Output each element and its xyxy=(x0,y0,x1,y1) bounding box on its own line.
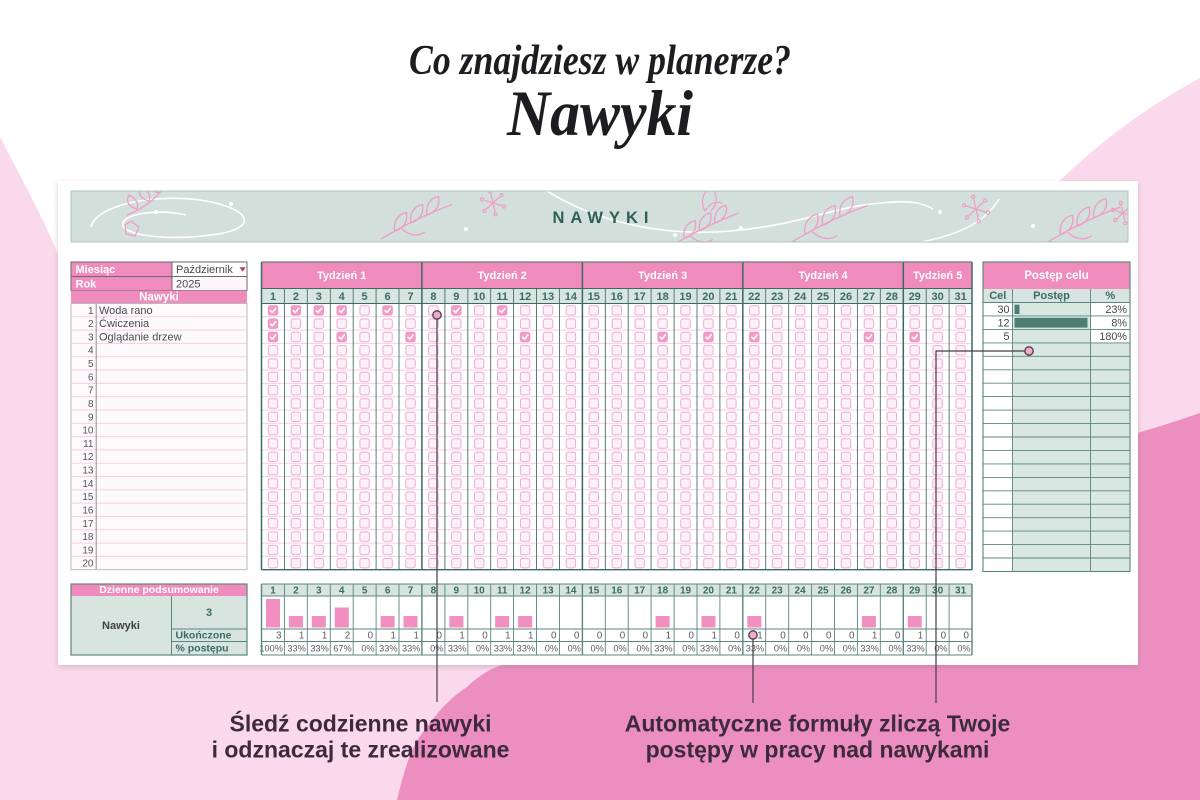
svg-text:28: 28 xyxy=(886,291,898,303)
svg-text:2: 2 xyxy=(345,630,350,641)
svg-text:0: 0 xyxy=(734,630,740,641)
svg-text:17: 17 xyxy=(634,585,646,596)
svg-text:14: 14 xyxy=(565,585,577,596)
svg-text:9: 9 xyxy=(88,412,94,423)
svg-text:33%: 33% xyxy=(860,644,878,654)
svg-text:22: 22 xyxy=(748,291,760,303)
svg-text:0: 0 xyxy=(826,630,832,641)
svg-text:0: 0 xyxy=(941,630,947,641)
svg-text:Ćwiczenia: Ćwiczenia xyxy=(99,317,150,330)
svg-text:1: 1 xyxy=(872,630,877,641)
svg-text:29: 29 xyxy=(909,585,921,596)
svg-text:3: 3 xyxy=(88,332,94,343)
svg-text:31: 31 xyxy=(955,585,967,596)
svg-text:20: 20 xyxy=(703,585,715,596)
svg-text:30: 30 xyxy=(931,291,943,303)
svg-text:1: 1 xyxy=(459,630,464,641)
svg-text:0%: 0% xyxy=(613,644,626,654)
svg-text:8: 8 xyxy=(88,399,94,410)
svg-text:180%: 180% xyxy=(1099,331,1127,343)
svg-text:12: 12 xyxy=(519,291,531,303)
svg-text:19: 19 xyxy=(82,545,94,556)
svg-text:6: 6 xyxy=(385,291,391,303)
svg-text:Oglądanie drzew: Oglądanie drzew xyxy=(99,331,182,343)
svg-text:Miesiąc: Miesiąc xyxy=(76,264,116,276)
svg-text:13: 13 xyxy=(542,291,554,303)
svg-text:0: 0 xyxy=(597,630,603,641)
svg-text:3: 3 xyxy=(316,291,322,303)
svg-text:10: 10 xyxy=(473,291,485,303)
svg-text:16: 16 xyxy=(82,505,94,516)
svg-text:7: 7 xyxy=(407,291,413,303)
svg-text:0: 0 xyxy=(849,630,855,641)
svg-text:0%: 0% xyxy=(774,644,787,654)
svg-text:33%: 33% xyxy=(310,644,328,654)
svg-text:0%: 0% xyxy=(545,644,558,654)
svg-text:25: 25 xyxy=(817,291,829,303)
svg-text:31: 31 xyxy=(954,291,966,303)
svg-text:postępy w pracy nad nawykami: postępy w pracy nad nawykami xyxy=(646,737,990,763)
svg-text:18: 18 xyxy=(657,585,669,596)
svg-text:0%: 0% xyxy=(568,644,581,654)
svg-text:0%: 0% xyxy=(957,644,970,654)
svg-text:Tydzień 1: Tydzień 1 xyxy=(317,270,366,282)
svg-text:0%: 0% xyxy=(820,644,833,654)
svg-text:24: 24 xyxy=(795,585,807,596)
svg-text:2: 2 xyxy=(88,319,94,330)
svg-text:3: 3 xyxy=(206,607,212,619)
svg-text:5: 5 xyxy=(88,359,94,370)
svg-text:Nawyki: Nawyki xyxy=(506,78,693,149)
svg-text:27: 27 xyxy=(863,585,875,596)
svg-text:Dzienne podsumowanie: Dzienne podsumowanie xyxy=(99,584,219,596)
svg-text:25: 25 xyxy=(817,585,829,596)
svg-text:0%: 0% xyxy=(843,644,856,654)
svg-text:1: 1 xyxy=(299,630,304,641)
svg-text:16: 16 xyxy=(611,585,623,596)
svg-text:1: 1 xyxy=(413,630,418,641)
svg-text:1: 1 xyxy=(711,630,716,641)
svg-text:33%: 33% xyxy=(287,644,305,654)
svg-text:18: 18 xyxy=(656,291,668,303)
svg-text:5: 5 xyxy=(362,585,368,596)
svg-text:0: 0 xyxy=(803,630,809,641)
svg-text:1: 1 xyxy=(918,630,923,641)
svg-text:21: 21 xyxy=(725,291,737,303)
svg-text:20: 20 xyxy=(702,291,714,303)
svg-text:3: 3 xyxy=(316,585,322,596)
svg-text:11: 11 xyxy=(496,291,508,303)
svg-text:33%: 33% xyxy=(746,644,764,654)
svg-text:15: 15 xyxy=(82,492,94,503)
svg-text:Tydzień 4: Tydzień 4 xyxy=(798,270,848,282)
svg-text:Śledź codzienne nawyki: Śledź codzienne nawyki xyxy=(229,710,491,737)
svg-text:0%: 0% xyxy=(889,644,902,654)
svg-text:1: 1 xyxy=(666,630,671,641)
svg-text:0%: 0% xyxy=(797,644,810,654)
svg-text:0: 0 xyxy=(964,630,970,641)
svg-text:11: 11 xyxy=(83,439,94,450)
svg-text:33%: 33% xyxy=(494,644,512,654)
svg-text:26: 26 xyxy=(840,291,852,303)
svg-text:19: 19 xyxy=(679,291,691,303)
svg-text:1: 1 xyxy=(505,630,510,641)
svg-text:33%: 33% xyxy=(448,644,466,654)
svg-text:8: 8 xyxy=(430,291,436,303)
svg-text:i odznaczaj te zrealizowane: i odznaczaj te zrealizowane xyxy=(212,737,510,763)
svg-text:4: 4 xyxy=(339,291,346,303)
svg-text:0: 0 xyxy=(780,630,786,641)
svg-text:7: 7 xyxy=(88,386,94,397)
svg-text:13: 13 xyxy=(82,466,94,477)
svg-text:23: 23 xyxy=(771,291,783,303)
svg-text:0%: 0% xyxy=(476,644,489,654)
svg-text:Rok: Rok xyxy=(76,279,98,291)
svg-text:0: 0 xyxy=(551,630,557,641)
svg-text:14: 14 xyxy=(565,291,578,303)
svg-text:1: 1 xyxy=(88,306,94,317)
svg-text:1: 1 xyxy=(322,630,327,641)
svg-text:33%: 33% xyxy=(906,644,924,654)
svg-text:0: 0 xyxy=(895,630,901,641)
svg-text:6: 6 xyxy=(88,372,94,383)
svg-text:100%: 100% xyxy=(259,644,283,654)
svg-text:9: 9 xyxy=(453,291,459,303)
svg-text:33%: 33% xyxy=(700,644,718,654)
svg-text:Nawyki: Nawyki xyxy=(139,292,179,304)
svg-text:9: 9 xyxy=(454,585,460,596)
svg-text:Tydzień 2: Tydzień 2 xyxy=(478,270,527,282)
svg-text:0: 0 xyxy=(368,630,374,641)
svg-text:0%: 0% xyxy=(682,644,695,654)
svg-text:Postęp celu: Postęp celu xyxy=(1024,270,1089,282)
svg-text:1: 1 xyxy=(270,291,276,303)
svg-text:1: 1 xyxy=(270,585,276,596)
svg-text:33%: 33% xyxy=(654,644,672,654)
svg-text:0: 0 xyxy=(620,630,626,641)
svg-text:33%: 33% xyxy=(402,644,420,654)
svg-text:12: 12 xyxy=(997,317,1009,329)
svg-text:0%: 0% xyxy=(728,644,741,654)
svg-text:12: 12 xyxy=(82,452,94,463)
svg-text:21: 21 xyxy=(726,585,738,596)
svg-text:NAWYKI: NAWYKI xyxy=(553,209,655,227)
svg-text:7: 7 xyxy=(408,585,414,596)
svg-text:26: 26 xyxy=(840,585,852,596)
svg-text:0%: 0% xyxy=(636,644,649,654)
svg-text:Nawyki: Nawyki xyxy=(102,620,140,632)
svg-text:10: 10 xyxy=(82,426,94,437)
svg-text:1: 1 xyxy=(528,630,533,641)
svg-text:5: 5 xyxy=(362,291,368,303)
svg-text:18: 18 xyxy=(82,532,94,543)
svg-text:33%: 33% xyxy=(517,644,535,654)
svg-text:14: 14 xyxy=(82,479,94,490)
svg-text:1: 1 xyxy=(757,630,762,641)
svg-text:2025: 2025 xyxy=(176,279,200,291)
svg-text:0%: 0% xyxy=(591,644,604,654)
svg-text:0: 0 xyxy=(689,630,695,641)
svg-text:4: 4 xyxy=(88,346,94,357)
svg-text:2: 2 xyxy=(293,585,299,596)
svg-text:24: 24 xyxy=(794,291,807,303)
svg-text:33%: 33% xyxy=(379,644,397,654)
svg-text:15: 15 xyxy=(588,291,600,303)
svg-text:17: 17 xyxy=(634,291,646,303)
svg-text:27: 27 xyxy=(863,291,875,303)
svg-text:Automatyczne formuły zliczą Tw: Automatyczne formuły zliczą Twoje xyxy=(625,711,1011,737)
svg-text:0: 0 xyxy=(482,630,488,641)
svg-text:13: 13 xyxy=(542,585,554,596)
svg-text:10: 10 xyxy=(474,585,486,596)
svg-text:0%: 0% xyxy=(361,644,374,654)
svg-text:15: 15 xyxy=(588,585,600,596)
svg-text:Cel: Cel xyxy=(989,290,1006,302)
svg-text:30: 30 xyxy=(997,304,1009,316)
svg-text:19: 19 xyxy=(680,585,692,596)
svg-text:29: 29 xyxy=(909,291,921,303)
svg-text:4: 4 xyxy=(339,585,345,596)
svg-text:5: 5 xyxy=(1003,331,1009,343)
svg-text:23: 23 xyxy=(772,585,784,596)
svg-text:8: 8 xyxy=(431,585,437,596)
svg-text:22: 22 xyxy=(749,585,761,596)
svg-text:20: 20 xyxy=(82,559,94,570)
svg-text:3: 3 xyxy=(276,630,282,641)
svg-text:67%: 67% xyxy=(333,644,351,654)
svg-text:16: 16 xyxy=(611,291,623,303)
svg-text:Tydzień 5: Tydzień 5 xyxy=(913,270,962,282)
svg-text:2: 2 xyxy=(293,291,299,303)
svg-text:% postępu: % postępu xyxy=(176,643,229,655)
svg-text:6: 6 xyxy=(385,585,391,596)
svg-text:Październik: Październik xyxy=(176,264,233,276)
svg-text:30: 30 xyxy=(932,585,944,596)
svg-text:11: 11 xyxy=(497,585,508,596)
svg-text:Postęp: Postęp xyxy=(1033,290,1070,302)
svg-text:1: 1 xyxy=(391,630,396,641)
svg-text:23%: 23% xyxy=(1105,304,1127,316)
svg-text:28: 28 xyxy=(886,585,898,596)
svg-text:Tydzień 3: Tydzień 3 xyxy=(638,270,687,282)
svg-text:17: 17 xyxy=(82,519,94,530)
svg-text:Ukończone: Ukończone xyxy=(176,630,232,642)
svg-text:8%: 8% xyxy=(1111,317,1127,329)
svg-text:Woda rano: Woda rano xyxy=(99,305,153,317)
svg-text:12: 12 xyxy=(520,585,532,596)
svg-text:0: 0 xyxy=(574,630,580,641)
svg-text:%: % xyxy=(1105,290,1115,302)
svg-text:0: 0 xyxy=(643,630,649,641)
